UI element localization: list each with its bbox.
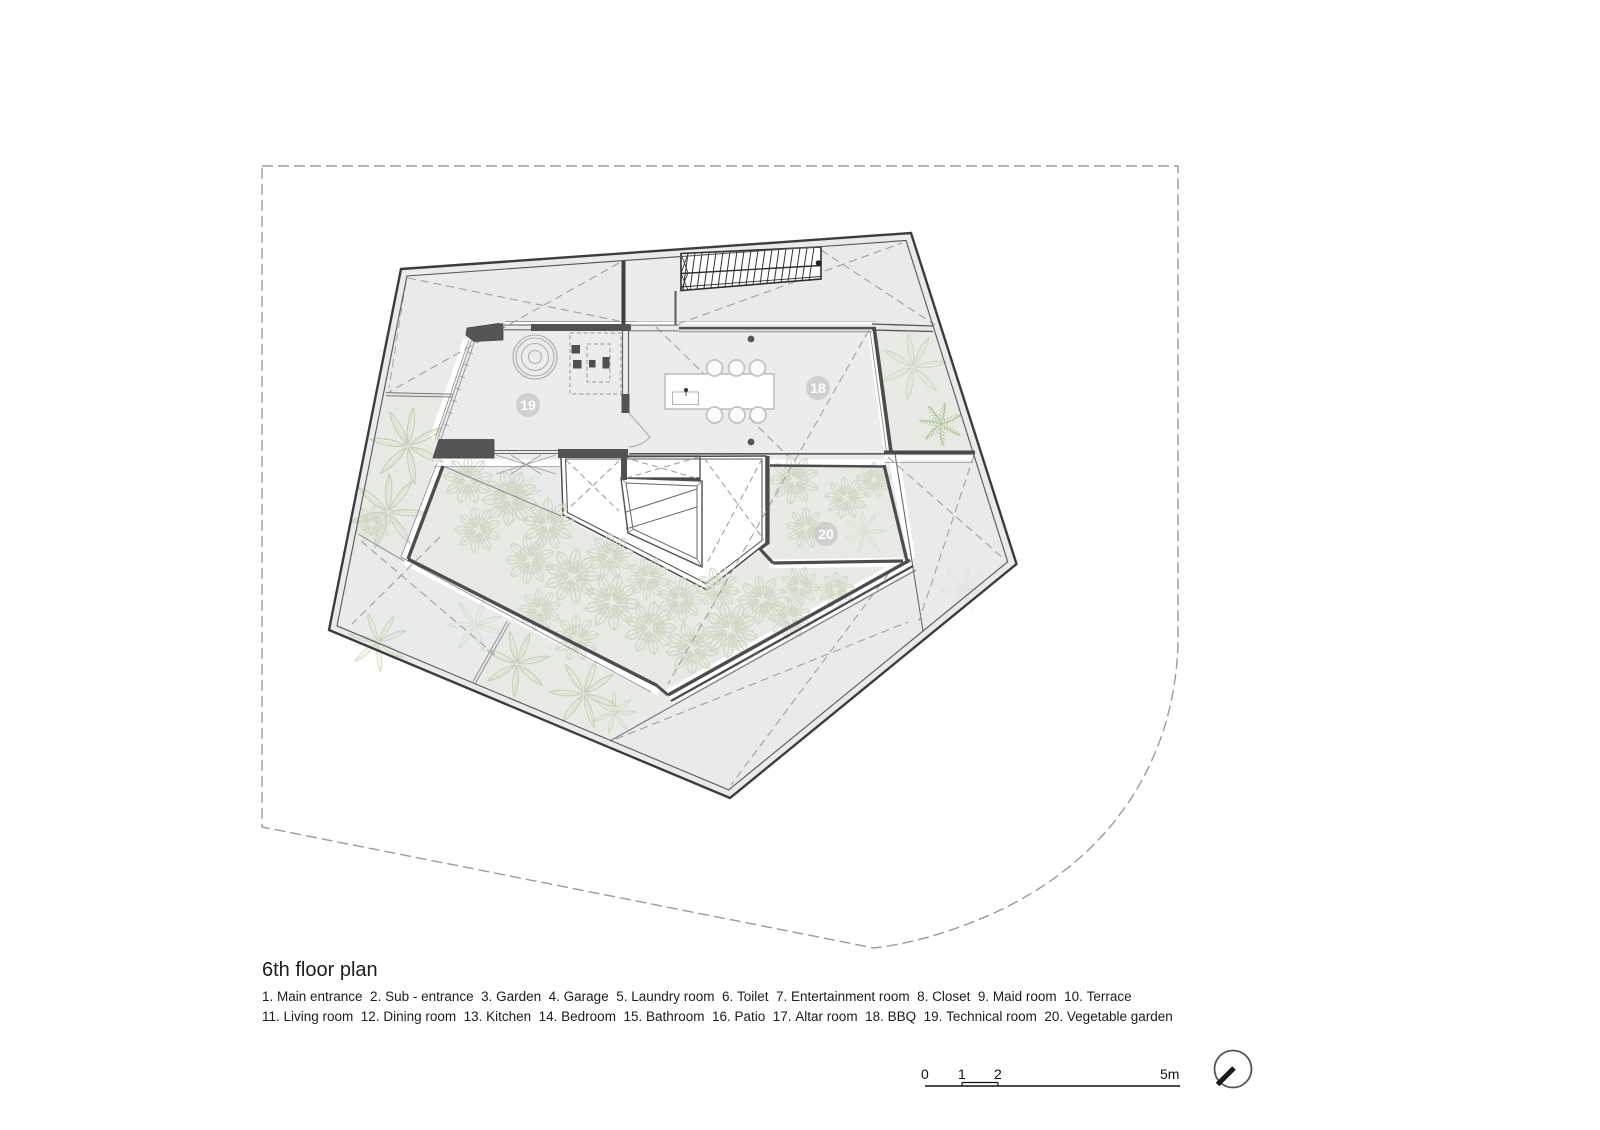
svg-text:19: 19 [520,397,536,413]
svg-text:0: 0 [921,1066,929,1082]
svg-text:18: 18 [810,380,826,396]
svg-text:20: 20 [818,526,834,542]
svg-text:6th floor plan: 6th floor plan [262,959,378,981]
svg-text:11. Living room 12. Dining ro: 11. Living room 12. Dining room 13. Kitc… [262,1009,1173,1024]
svg-text:2: 2 [994,1066,1002,1082]
svg-text:1: 1 [958,1066,966,1082]
svg-text:5m: 5m [1160,1066,1179,1082]
svg-text:1. Main entrance 2. Sub - ent: 1. Main entrance 2. Sub - entrance 3. Ga… [262,989,1132,1004]
